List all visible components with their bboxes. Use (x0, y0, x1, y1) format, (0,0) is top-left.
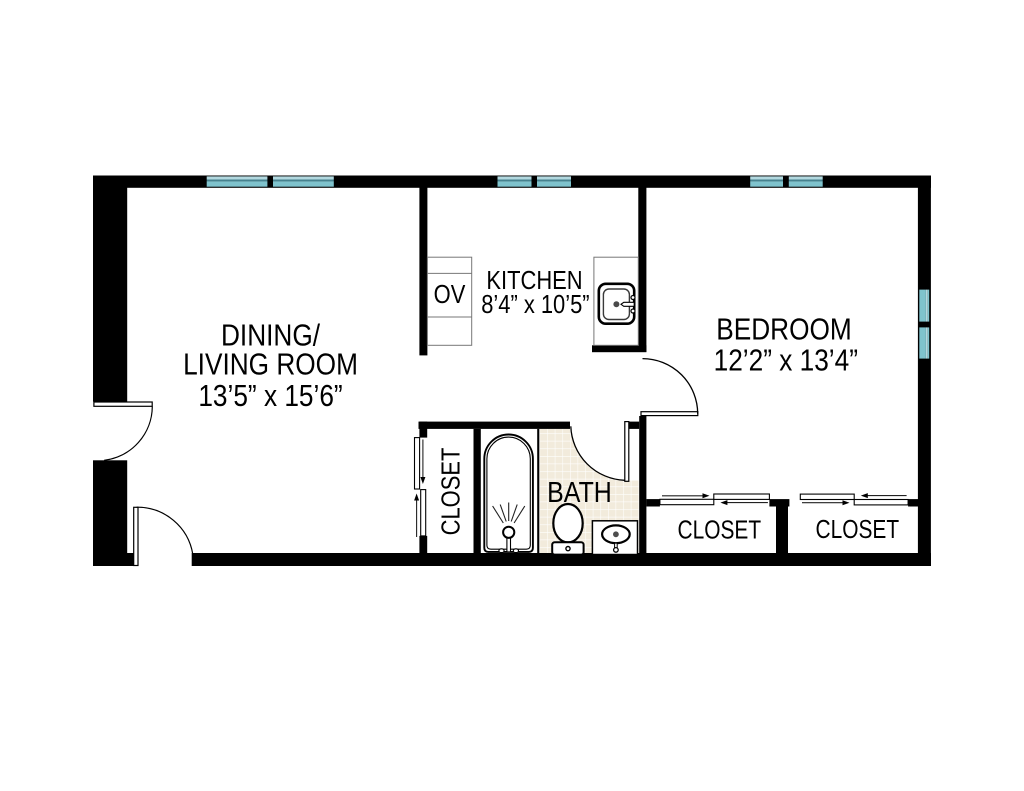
svg-text:12’2” x 13’4”: 12’2” x 13’4” (714, 343, 858, 377)
svg-text:BATH: BATH (547, 476, 612, 508)
svg-text:13’5” x 15’6”: 13’5” x 15’6” (198, 379, 342, 413)
svg-text:CLOSET: CLOSET (678, 515, 762, 543)
svg-text:CLOSET: CLOSET (816, 515, 900, 543)
svg-text:BEDROOM: BEDROOM (716, 313, 851, 347)
svg-text:CLOSET: CLOSET (437, 448, 466, 536)
svg-text:8’4” x 10’5”: 8’4” x 10’5” (481, 290, 589, 319)
svg-text:OV: OV (434, 280, 466, 309)
svg-text:LIVING ROOM: LIVING ROOM (183, 348, 358, 382)
